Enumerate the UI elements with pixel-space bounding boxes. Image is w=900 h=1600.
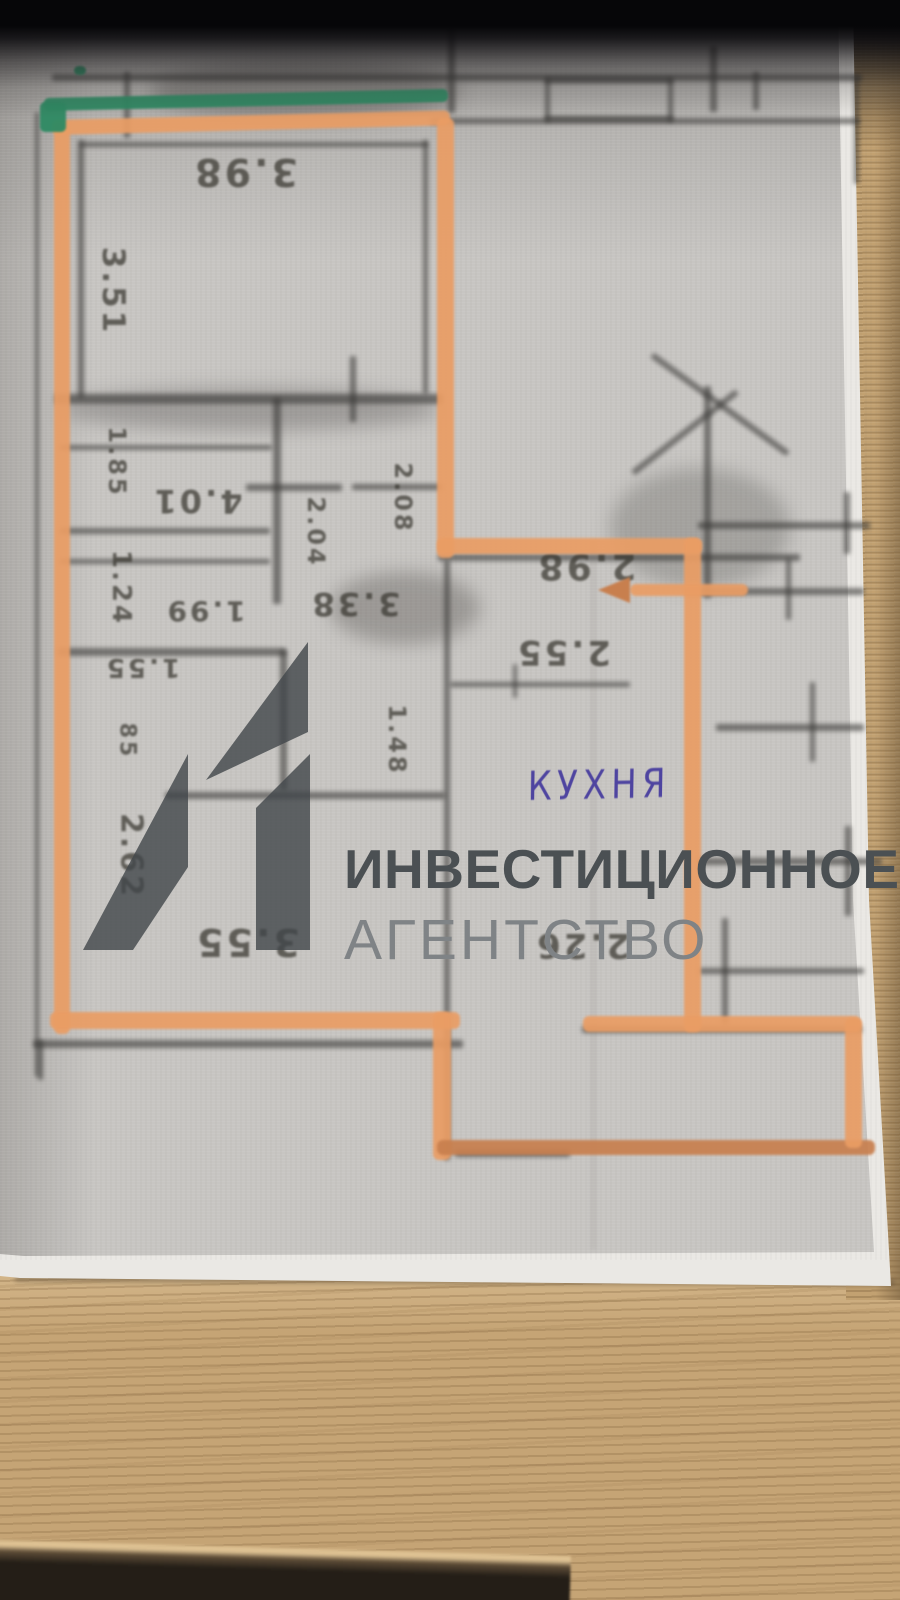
dimension-label: 1.85 — [103, 426, 131, 497]
wall-segment — [60, 445, 272, 450]
wall-segment — [38, 1040, 43, 1080]
wall-segment — [698, 522, 870, 529]
dimension-label: 1.48 — [383, 704, 411, 775]
marker-outline-segment — [50, 1012, 460, 1029]
wall-segment — [35, 112, 39, 1077]
marker-outline-segment — [437, 538, 702, 554]
wall-segment — [60, 559, 270, 564]
wall-segment — [78, 140, 84, 398]
marker-outline-segment — [583, 1016, 861, 1032]
wall-segment — [273, 398, 281, 604]
dimension-label: 2.55 — [515, 632, 611, 672]
dimension-label: 4.01 — [152, 482, 243, 520]
dimension-label: 3.38 — [310, 585, 401, 623]
dimension-label: 2.04 — [302, 496, 330, 567]
wall-segment — [423, 140, 428, 394]
marker-outline-segment — [630, 584, 748, 596]
marker-outline-segment — [437, 118, 454, 558]
marker-outline-segment — [433, 1012, 451, 1160]
wall-segment — [350, 356, 356, 422]
dimension-label: 3.98 — [192, 150, 298, 194]
wall-segment — [60, 528, 270, 534]
wall-segment — [80, 142, 428, 147]
wall-segment — [33, 1040, 463, 1048]
photo-top-shadow — [0, 0, 900, 125]
wall-segment — [716, 724, 864, 731]
dimension-label: 1.24 — [106, 550, 136, 626]
dimension-label: 1.99 — [164, 595, 245, 628]
agency-logo-41-icon — [48, 632, 318, 957]
kitchen-handwritten-label: КУХНЯ — [527, 761, 671, 810]
wall-segment — [450, 682, 630, 687]
marker-arrow-icon — [598, 577, 630, 603]
marker-outline-segment — [437, 1140, 875, 1155]
wall-segment — [704, 386, 711, 598]
watermark-agency-name: ИНВЕСТИЦИОННОЕ — [344, 842, 900, 897]
wall-segment — [246, 484, 342, 491]
wall-segment — [55, 394, 443, 404]
dimension-label: 3.51 — [95, 247, 131, 336]
wall-segment — [810, 682, 815, 762]
floor-plan-photo: 3.983.511.854.012.042.081.241.993.381.55… — [0, 0, 900, 1600]
wall-segment — [722, 918, 728, 1024]
dimension-label: 2.08 — [389, 462, 417, 533]
wall-segment — [786, 558, 791, 620]
watermark-agency-subtitle: АГЕНТСТВО — [344, 912, 708, 969]
marker-outline-segment — [845, 1018, 862, 1148]
